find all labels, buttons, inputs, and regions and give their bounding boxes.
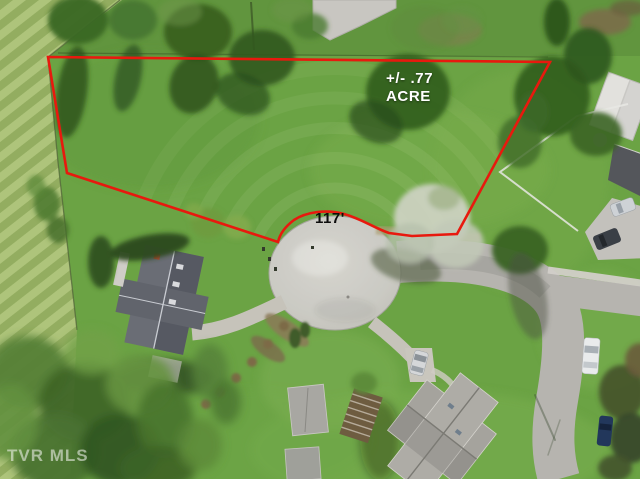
acreage-label: +/- .77ACRE [386,70,433,106]
mls-watermark: TVR MLS [7,446,89,466]
frontage-label: 117' [315,210,345,227]
car [582,337,600,374]
hedge [88,236,114,288]
manhole [347,296,350,299]
aerial-photo: +/- .77ACRE 117' TVR MLS [0,0,640,479]
aerial-scene [0,0,640,479]
shed-roof [285,447,321,479]
acreage-line2: ACRE [386,88,431,105]
acreage-line1: +/- .77 [386,70,433,87]
